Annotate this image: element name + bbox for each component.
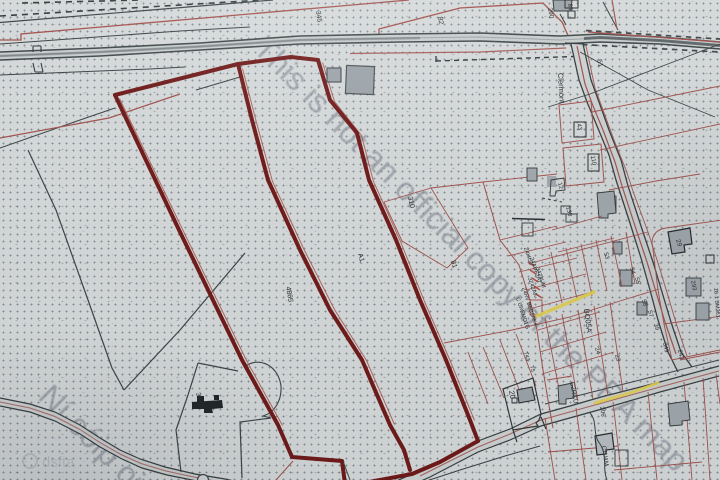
svg-text:T5: T5 bbox=[528, 365, 535, 373]
svg-text:349: 349 bbox=[661, 342, 669, 354]
svg-text:20: 20 bbox=[507, 390, 517, 400]
svg-text:290: 290 bbox=[546, 7, 555, 19]
svg-text:12: 12 bbox=[556, 182, 564, 191]
svg-text:133: 133 bbox=[564, 206, 573, 218]
svg-text:81: 81 bbox=[449, 260, 458, 269]
svg-text:206: 206 bbox=[598, 406, 606, 418]
svg-text:110: 110 bbox=[589, 155, 597, 166]
svg-text:Clermont: Clermont bbox=[556, 73, 567, 105]
svg-text:55: 55 bbox=[633, 277, 641, 286]
svg-text:T43: T43 bbox=[522, 351, 530, 362]
svg-text:A1: A1 bbox=[356, 253, 365, 263]
svg-text:51: 51 bbox=[595, 59, 604, 68]
svg-text:82: 82 bbox=[436, 16, 444, 25]
svg-text:57: 57 bbox=[646, 310, 654, 319]
svg-text:4865: 4865 bbox=[284, 286, 294, 303]
svg-text:83: 83 bbox=[566, 3, 573, 11]
svg-text:dsfta: dsfta bbox=[42, 454, 75, 471]
svg-text:BO05A: BO05A bbox=[582, 308, 594, 333]
svg-text:345: 345 bbox=[314, 10, 323, 23]
svg-text:23: 23 bbox=[613, 354, 621, 363]
svg-text:18·1 BM261: 18·1 BM261 bbox=[712, 288, 720, 318]
svg-text:39: 39 bbox=[652, 323, 660, 332]
svg-text:This is not an official copy o: This is not an official copy of the PRA … bbox=[247, 29, 696, 478]
svg-text:53: 53 bbox=[602, 252, 610, 261]
svg-text:43: 43 bbox=[575, 123, 582, 131]
